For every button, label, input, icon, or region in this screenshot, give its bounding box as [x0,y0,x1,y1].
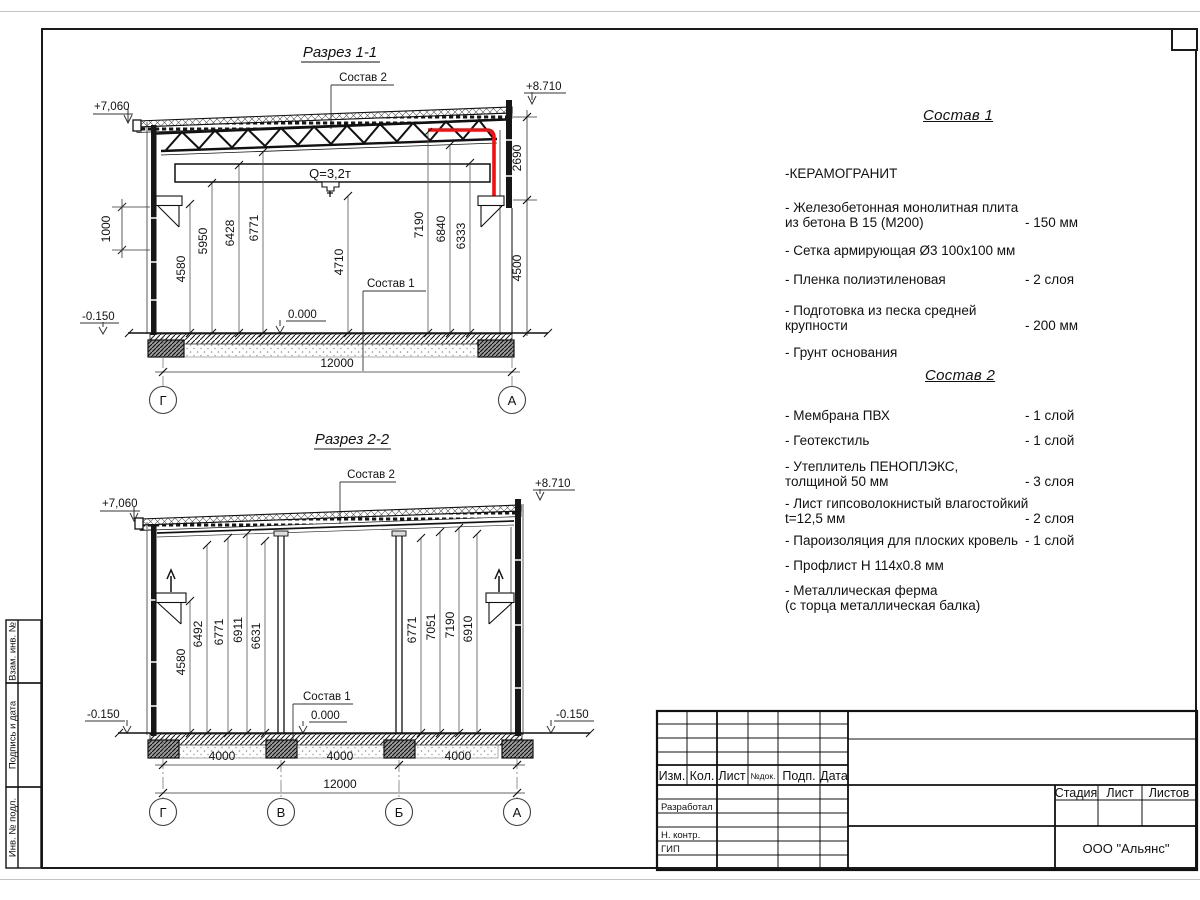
stamp-header-data: Дата [820,769,848,783]
sostav2-item: - Мембрана ПВХ- 1 слой [785,408,1197,423]
stamp-header-kol: Кол. [690,769,715,783]
sostav2-callout-1: Состав 2 [339,72,387,84]
svg-text:0.000: 0.000 [311,710,340,722]
section1-title: Разрез 1-1 [303,44,377,61]
svg-text:+8.710: +8.710 [526,81,562,93]
floor-assembly-2 [115,729,594,758]
svg-text:4500: 4500 [510,254,524,281]
dim-1000: 1000 [99,199,150,258]
section-2-2-drawing: Разрез 2-2 Состав 2 +7,060 +8.710 [80,425,595,840]
grid-axis-g2: Г [159,805,166,820]
grid-axis-a: А [508,393,517,408]
sheet-bottom-edge [0,879,1200,880]
sostav2-item: - Профлист Н 114х0.8 мм [785,558,1197,573]
grid-axis-a2: А [513,805,522,820]
sostav2-item: - Лист гипсоволокнистый влагостойкий t=1… [785,496,1197,526]
elevation-mark-left-2: +7,060 [100,498,140,521]
stamp-header-list: Лист [718,769,745,783]
sostav1-item: - Подготовка из песка средней крупности-… [785,303,1197,333]
level-minus-left-2: -0.150 [85,709,131,733]
svg-text:7190: 7190 [412,211,426,238]
stamp-sheet-header: Лист [1106,786,1133,800]
elevation-mark-left: +7,060 [93,101,133,123]
svg-text:+7,060: +7,060 [102,498,138,510]
grid-bubbles-1: Г А [150,387,526,414]
floor-assembly [125,329,552,357]
svg-text:-0.150: -0.150 [87,709,120,721]
sostav1-callout-2: Состав 1 [303,691,351,703]
stamp-header-ndok: №док. [751,771,776,781]
level-minus-0150: -0.150 [80,311,119,334]
svg-text:6771: 6771 [212,618,226,645]
svg-text:-0.150: -0.150 [82,311,115,323]
svg-text:6492: 6492 [191,620,205,647]
sostav2-callout-2: Состав 2 [347,469,395,481]
sostav2-item: - Металлическая ферма (с торца металличе… [785,583,1197,613]
stamp-role-ncontrol: Н. контр. [661,830,700,841]
right-dim-chain: 2690 4500 [510,110,537,337]
margin-label-vzam: Взам. инв. № [8,622,19,681]
sostav2-item: - Пароизоляция для плоских кровель- 1 сл… [785,533,1197,548]
sostav1-item: - Грунт основания [785,345,1197,360]
svg-text:4000: 4000 [327,749,354,763]
title-block: Изм. Кол. Лист №док. Подп. Дата Разработ… [650,705,1200,877]
svg-text:6840: 6840 [434,215,448,242]
svg-text:+7,060: +7,060 [94,101,130,113]
vertical-dim-labels: 4580 5950 6428 6771 4710 7190 6840 6333 [174,211,468,282]
grid-axis-b: Б [395,805,404,820]
svg-text:0.000: 0.000 [288,309,317,321]
sheet-top-edge [0,11,1200,12]
margin-attribute-boxes: Взам. инв. № Подпись и дата Инв. № подл. [0,612,55,874]
svg-text:6771: 6771 [405,616,419,643]
svg-text:6333: 6333 [454,222,468,249]
left-wall [147,122,182,335]
svg-text:7190: 7190 [443,611,457,638]
svg-text:12000: 12000 [320,356,354,370]
level-0000-2: 0.000 [299,710,347,733]
svg-text:6910: 6910 [461,615,475,642]
level-0000: 0.000 [276,309,326,333]
margin-label-inv: Инв. № подл. [8,798,19,857]
elevation-mark-right: +8.710 [524,81,566,104]
section-1-1-drawing: Разрез 1-1 Состав 2 +7,060 +8.710 Q=3,2т [80,35,580,430]
crane-beam: Q=3,2т [175,164,490,197]
stamp-role-developed: Разработал [661,802,713,813]
top-right-inventory-box [1171,28,1198,51]
sostav2-item: - Геотекстиль- 1 слой [785,433,1197,448]
sostav1-item: - Сетка армирующая Ø3 100х100 мм [785,243,1197,258]
grid-axis-v: В [277,805,286,820]
sostav1-callout-1: Состав 1 [367,278,415,290]
crane-capacity: Q=3,2т [309,166,351,181]
svg-text:4000: 4000 [209,749,236,763]
left-wall-2 [147,522,186,736]
svg-text:1000: 1000 [99,215,113,242]
svg-text:12000: 12000 [323,777,357,791]
sostav2-title: Состав 2 [925,367,995,384]
svg-text:6428: 6428 [223,219,237,246]
sostav1-item: -КЕРАМОГРАНИТ [785,166,1197,181]
stamp-sheets-header: Листов [1149,786,1190,800]
svg-text:4000: 4000 [445,749,472,763]
stamp-stage-header: Стадия [1055,786,1098,800]
svg-text:-0.150: -0.150 [556,709,589,721]
right-wall-2 [486,499,523,736]
svg-text:4580: 4580 [174,255,188,282]
stamp-role-gip: ГИП [661,844,680,855]
company-name: ООО "Альянс" [1083,841,1170,856]
margin-label-podpis: Подпись и дата [8,700,19,769]
sostav2-item: - Утеплитель ПЕНОПЛЭКС, толщиной 50 мм- … [785,459,1197,489]
stamp-header-izm: Изм. [659,769,686,783]
stamp-header-podp: Подп. [782,769,815,783]
grid-bubbles-2: Г В Б А [150,799,531,826]
svg-text:6771: 6771 [247,214,261,241]
grid-axis-g: Г [159,393,166,408]
section2-title: Разрез 2-2 [315,431,390,448]
svg-text:4580: 4580 [174,648,188,675]
svg-text:7051: 7051 [424,613,438,640]
svg-text:+8.710: +8.710 [535,478,571,490]
sostav1-item: - Железобетонная монолитная плита из бет… [785,200,1197,230]
svg-text:6631: 6631 [249,622,263,649]
svg-text:5950: 5950 [196,227,210,254]
sostav1-title: Состав 1 [923,107,993,124]
svg-text:2690: 2690 [510,144,524,171]
sostav1-item: - Пленка полиэтиленовая- 2 слоя [785,272,1197,287]
elevation-mark-right-2: +8.710 [533,478,575,500]
svg-text:4710: 4710 [332,248,346,275]
vertical-dim-labels-2: 4580 6492 6771 6911 6631 6771 7051 7190 … [174,611,475,675]
level-minus-right-2: -0.150 [547,709,594,733]
svg-text:6911: 6911 [231,617,245,643]
